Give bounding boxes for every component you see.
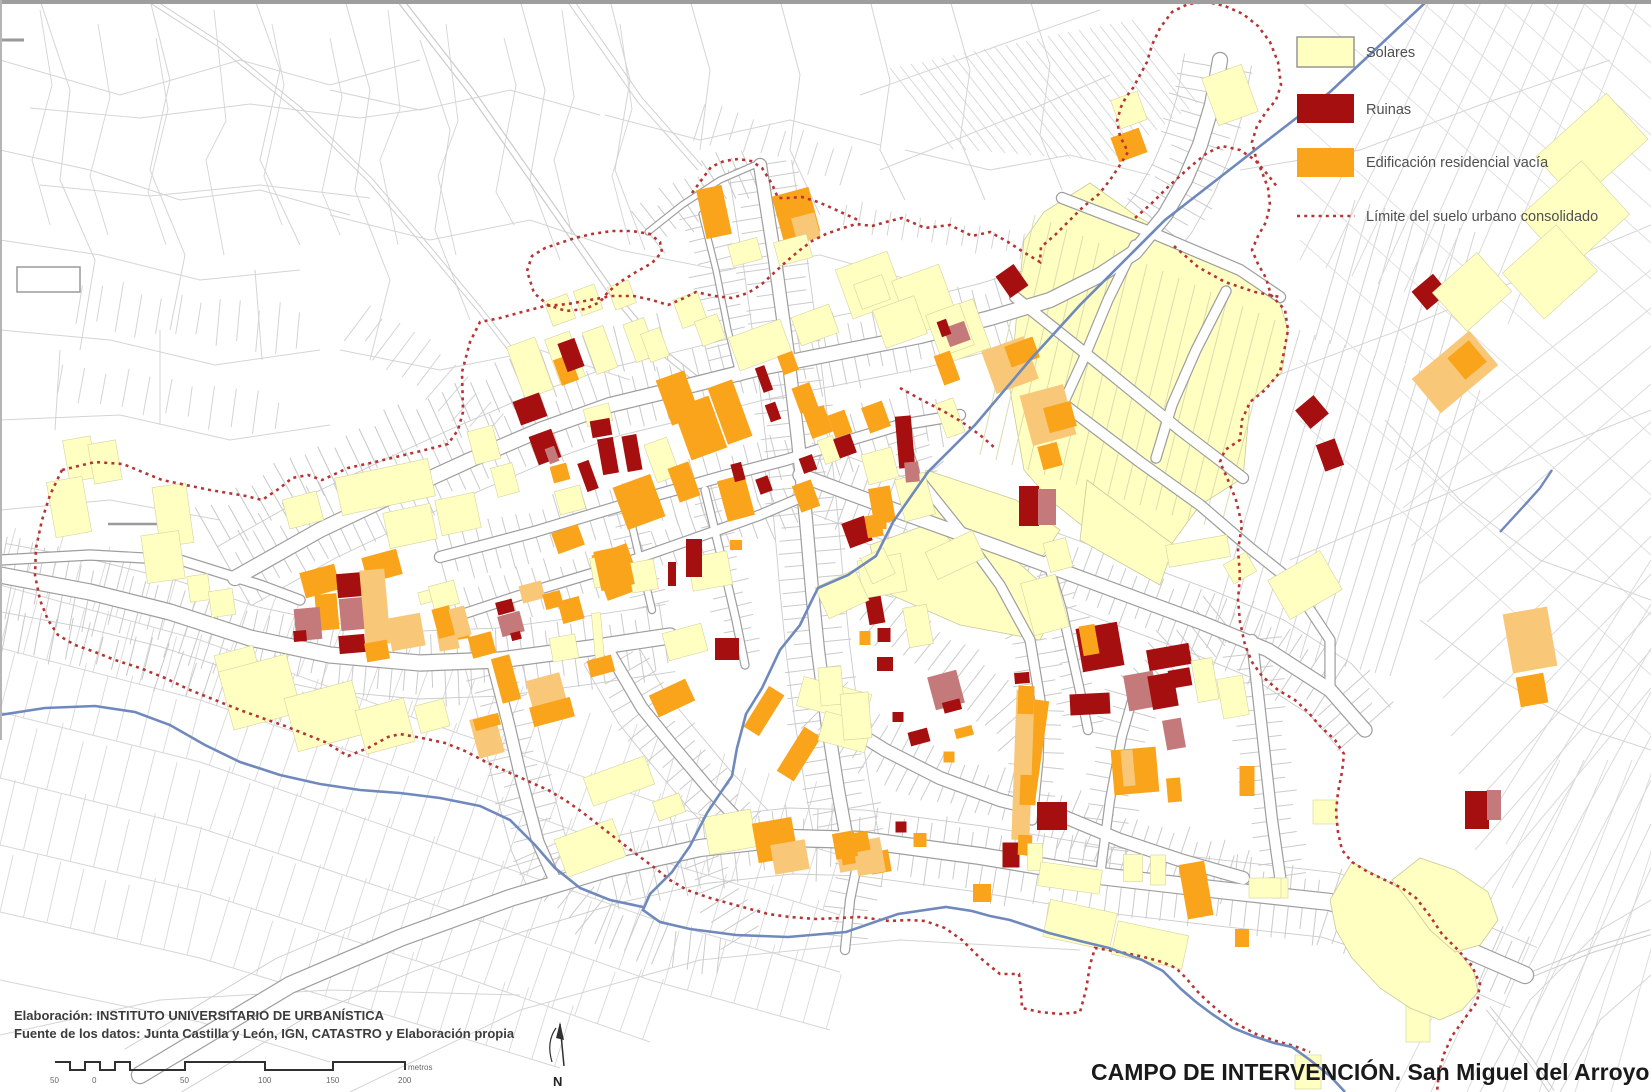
svg-text:Solares: Solares [1366, 45, 1415, 61]
svg-text:metros: metros [408, 1063, 432, 1072]
svg-text:CAMPO DE INTERVENCIÓN. San Mig: CAMPO DE INTERVENCIÓN. San Miguel del Ar… [1091, 1058, 1649, 1085]
svg-text:50: 50 [50, 1076, 59, 1085]
svg-text:Fuente de los datos: Junta Cas: Fuente de los datos: Junta Castilla y Le… [14, 1026, 515, 1041]
svg-text:50: 50 [180, 1076, 189, 1085]
svg-text:150: 150 [326, 1076, 340, 1085]
svg-text:Límite del suelo urbano consol: Límite del suelo urbano consolidado [1366, 209, 1598, 225]
svg-text:Edificación residencial vacía: Edificación residencial vacía [1366, 155, 1549, 171]
svg-text:Elaboración: INSTITUTO UNIVERS: Elaboración: INSTITUTO UNIVERSITARIO DE … [14, 1008, 385, 1023]
svg-text:200: 200 [398, 1076, 412, 1085]
svg-text:0: 0 [92, 1076, 97, 1085]
svg-text:Ruinas: Ruinas [1366, 102, 1411, 118]
svg-text:100: 100 [258, 1076, 272, 1085]
svg-text:N: N [553, 1074, 562, 1089]
